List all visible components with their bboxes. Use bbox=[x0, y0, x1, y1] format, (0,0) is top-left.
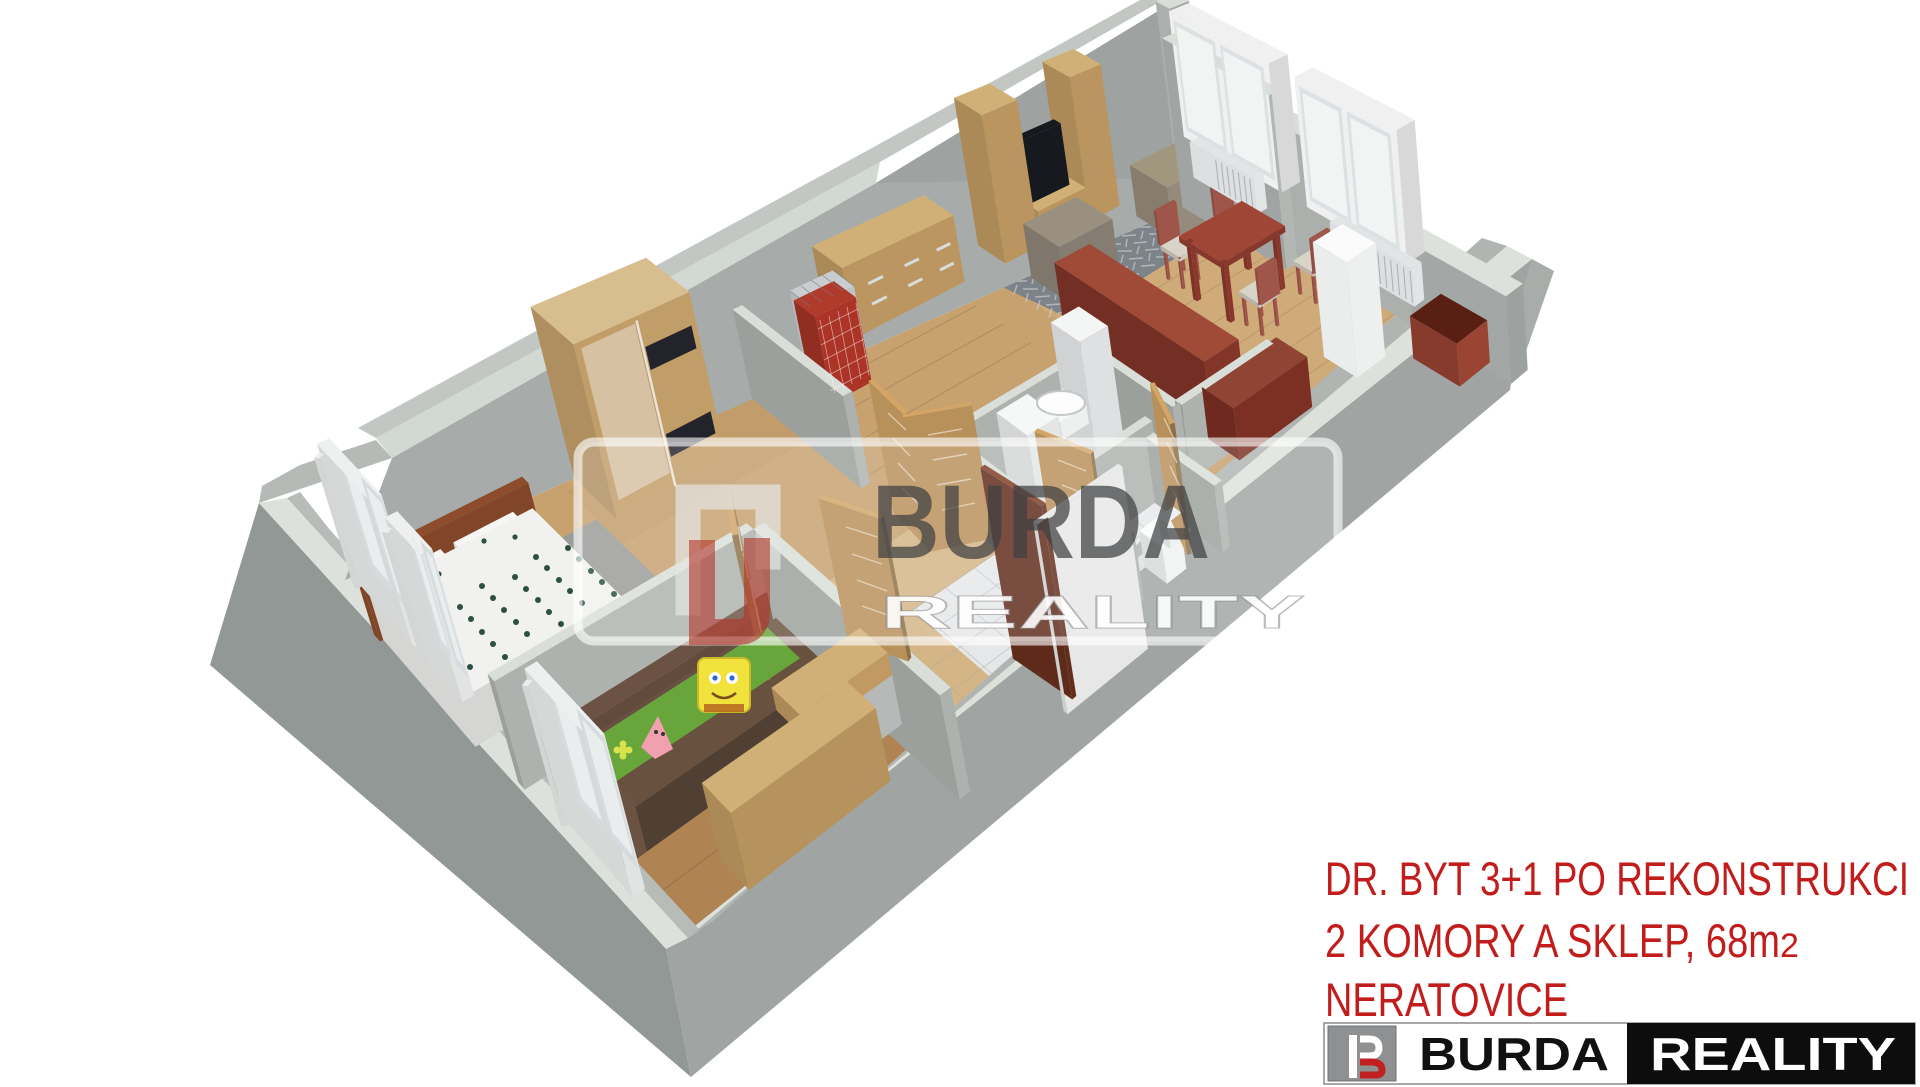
svg-text:BURDA: BURDA bbox=[872, 464, 1210, 581]
svg-text:REALITY: REALITY bbox=[1650, 1028, 1896, 1080]
svg-text:NERATOVICE: NERATOVICE bbox=[1325, 973, 1568, 1026]
svg-text:BURDA: BURDA bbox=[1419, 1028, 1609, 1080]
svg-text:REALITY: REALITY bbox=[880, 586, 1305, 638]
svg-text:2 KOMORY A SKLEP, 68m: 2 KOMORY A SKLEP, 68m bbox=[1325, 914, 1780, 967]
svg-text:2: 2 bbox=[1780, 927, 1799, 965]
svg-text:DR. BYT 3+1 PO REKONSTRUKCI: DR. BYT 3+1 PO REKONSTRUKCI bbox=[1325, 852, 1909, 905]
